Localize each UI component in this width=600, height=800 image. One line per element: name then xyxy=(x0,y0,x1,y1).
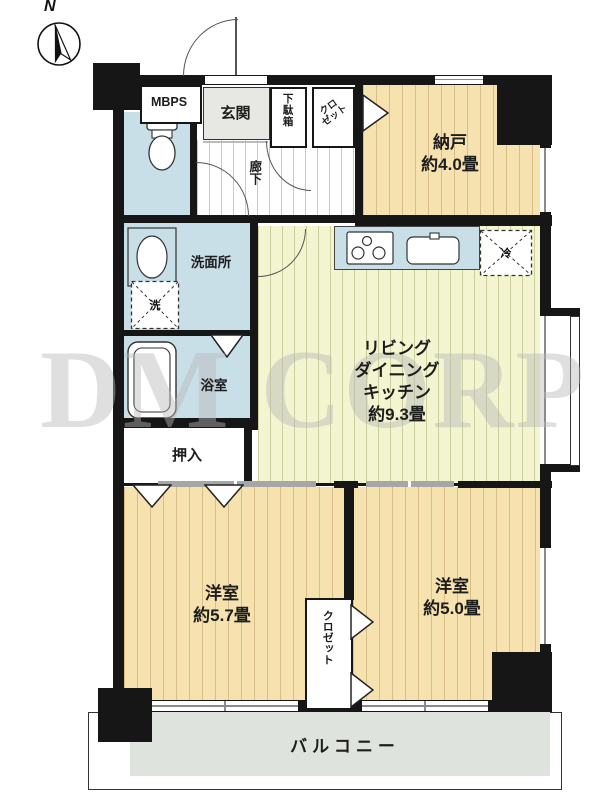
ldk-label: リビング ダイニング キッチン 約9.3畳 xyxy=(317,338,477,426)
window-line xyxy=(424,701,426,711)
bay-window-glass xyxy=(570,316,580,466)
closet-bottom-label: クロゼット xyxy=(320,610,334,665)
compass-icon xyxy=(36,21,82,67)
mbps-label: MBPS xyxy=(141,94,197,110)
bay-window-top-wall xyxy=(540,308,580,316)
window-line xyxy=(435,79,483,80)
oshiire-label: 押入 xyxy=(152,446,222,466)
wall-left xyxy=(113,85,124,742)
oshiire-folding-door-icon xyxy=(204,484,244,513)
washer-label: 洗 xyxy=(150,298,161,312)
window-line xyxy=(544,548,546,644)
window-line xyxy=(544,148,546,212)
genkan-step-line xyxy=(203,141,268,143)
wall-boundary-right xyxy=(458,481,552,488)
yokushitsu-label: 浴室 xyxy=(190,377,238,395)
bathtub-icon xyxy=(127,341,177,424)
bath-folding-door-icon xyxy=(210,334,244,363)
entrance-door-leaf xyxy=(235,17,237,75)
wall-top xyxy=(100,75,552,85)
fridge-label: 冷 xyxy=(501,246,512,260)
nando-label: 納戸 約4.0畳 xyxy=(370,132,530,176)
oshiire-folding-door-icon xyxy=(132,484,172,513)
wall-hall-bottom xyxy=(113,215,363,223)
bedroom57-label: 洋室 約5.7畳 xyxy=(142,583,302,627)
bedroom50-label: 洋室 約5.0畳 xyxy=(372,576,532,620)
hallway-label: 廊下 xyxy=(246,160,262,185)
toilet-icon xyxy=(140,116,184,177)
entrance-door-arc xyxy=(183,19,238,76)
stove-icon xyxy=(346,231,394,270)
closet-folding-door-icon xyxy=(350,672,374,713)
balcony-label: バルコニー xyxy=(140,736,550,758)
wall-nando-bottom xyxy=(355,215,552,226)
wall-senmenjo-right xyxy=(250,223,258,430)
getabako-label: 下駄箱 xyxy=(280,93,294,128)
genkan-label: 玄関 xyxy=(203,104,268,124)
wall-bath-bottom xyxy=(113,418,258,428)
wall-oshiire-right xyxy=(244,428,252,485)
wall-between-bedrooms xyxy=(344,483,354,600)
wall-pillar-bottomleft xyxy=(98,688,152,742)
floorplan-canvas: N xyxy=(0,0,600,800)
washer-space-icon: 洗 xyxy=(130,280,180,335)
nando-folding-door-icon xyxy=(362,94,390,137)
kitchen-sink-icon xyxy=(406,232,462,271)
fridge-space-icon: 冷 xyxy=(479,229,533,282)
window-line xyxy=(224,701,226,711)
window-line xyxy=(544,316,546,464)
closet-folding-door-icon xyxy=(350,604,374,645)
senmenjo-label: 洗面所 xyxy=(178,254,244,272)
partition-notch xyxy=(408,481,411,487)
compass-north-label: N xyxy=(44,0,56,16)
entrance-opening xyxy=(205,76,267,84)
wall-pillar-bottomright xyxy=(492,652,552,712)
nando-top-window xyxy=(435,76,483,84)
